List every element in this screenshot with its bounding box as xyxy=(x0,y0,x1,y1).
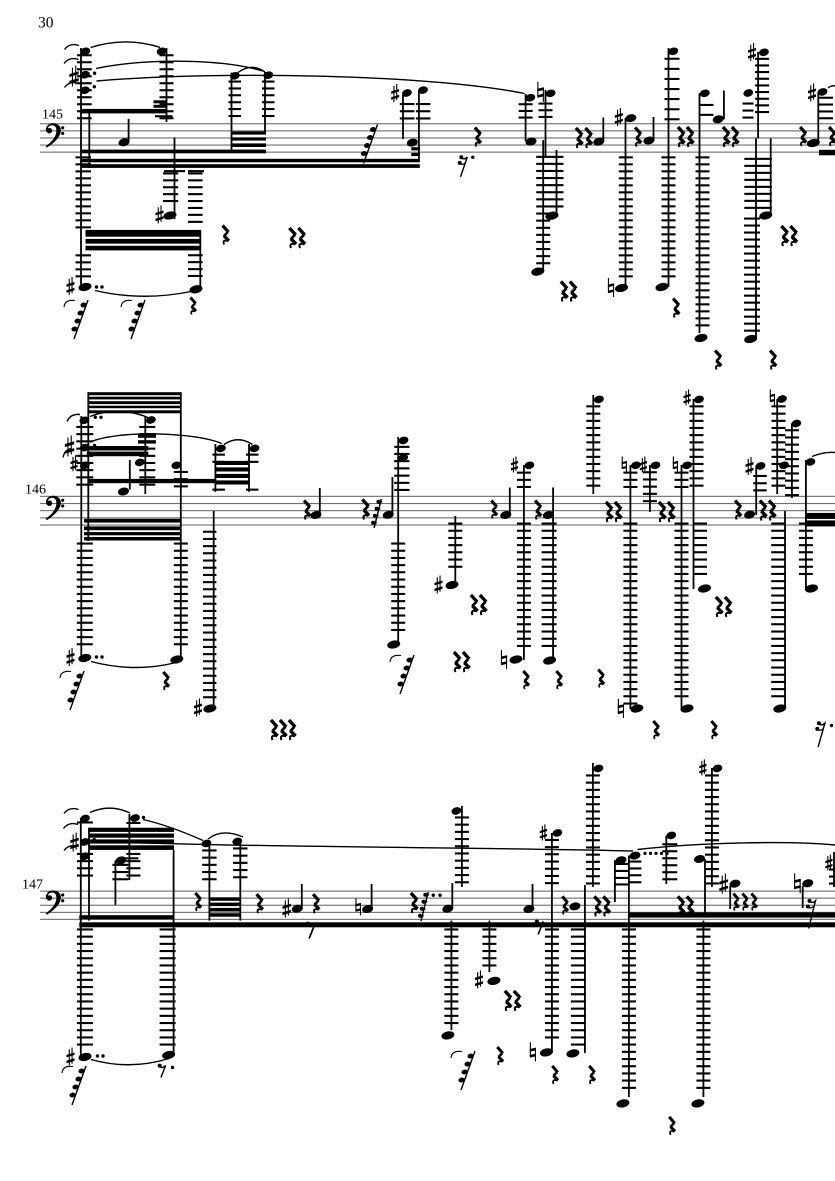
svg-text:30: 30 xyxy=(38,15,54,32)
svg-text:147: 147 xyxy=(22,878,43,893)
svg-text:145: 145 xyxy=(42,108,63,123)
svg-text:146: 146 xyxy=(25,483,46,498)
